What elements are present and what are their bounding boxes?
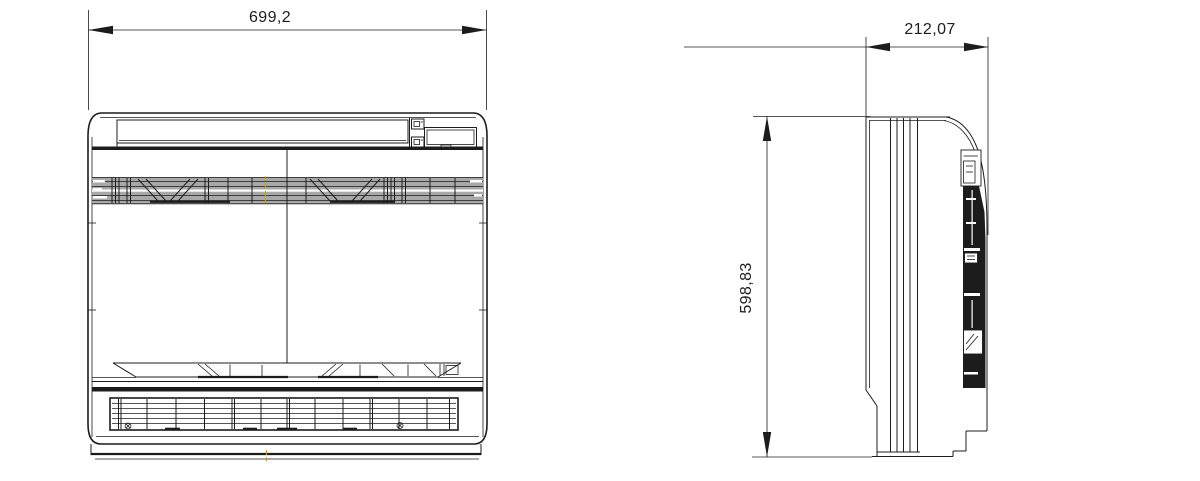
dim-arrow-left (89, 26, 114, 34)
dim-arrow-top (763, 117, 771, 142)
side-view (866, 117, 987, 457)
side-control-panel (961, 150, 981, 186)
depth-dimension: 212,07 (684, 21, 988, 235)
dim-arrow-bottom (763, 432, 771, 457)
height-dimension: 598,83 (738, 117, 872, 458)
dimension-drawing-canvas: 699,2 212,07 598,83 (0, 0, 1200, 481)
depth-dimension-label: 212,07 (904, 21, 955, 38)
height-dimension-label: 598,83 (738, 262, 755, 313)
dim-arrow-right (462, 26, 487, 34)
base-plinth (91, 437, 481, 462)
front-view (88, 113, 487, 461)
width-dimension-label: 699,2 (249, 9, 291, 26)
bottom-grille (110, 398, 458, 430)
width-dimension: 699,2 (89, 9, 487, 110)
back-panel-layers (877, 118, 920, 452)
dim-arrow-left (866, 43, 890, 51)
outlet-louver-marks (198, 364, 458, 376)
side-louver-strip (963, 186, 986, 388)
dim-arrow-right (964, 43, 988, 51)
grille-top-bar (92, 387, 483, 392)
control-button-icon (412, 119, 425, 129)
technical-drawing: 699,2 212,07 598,83 (0, 0, 1200, 481)
top-panel-divider (92, 147, 483, 151)
control-panel (412, 119, 477, 148)
control-button-icon (412, 137, 425, 147)
display-window (425, 128, 477, 148)
top-air-outlet (117, 118, 410, 147)
bottom-air-outlet (92, 363, 483, 378)
